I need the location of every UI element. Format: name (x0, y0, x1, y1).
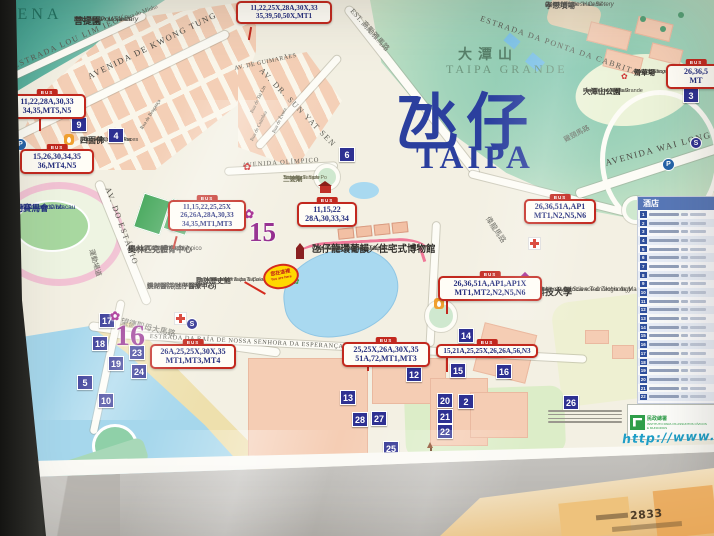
legend-row-name-cn (649, 274, 679, 277)
bus-tag: BUS (686, 59, 707, 66)
legend-row-number: 1 (640, 211, 647, 218)
bus-stop-stem (39, 118, 41, 131)
bus-stop-routes: BUS 26,36,51A,AP1MT1,N2,N5,N6 (524, 199, 596, 224)
legend-row-name-en (690, 222, 706, 225)
legend-row: 9 (638, 280, 714, 289)
legend-row-number: 8 (640, 272, 647, 279)
legend-row-name-en (690, 265, 706, 268)
bus-tag: BUS (183, 339, 204, 346)
bus-stop-routes: 11,22,25X,28A,30X,3335,39,50,50X,MT1 (236, 1, 332, 24)
legend-row-name-en (690, 387, 706, 390)
iacm-name-chinese: 民政總署 (647, 415, 707, 422)
bus-tag: BUS (197, 195, 218, 202)
attraction-marker-16: ✿ 16 (110, 310, 120, 322)
legend-row-stars (681, 230, 688, 233)
legend-row-name-cn (649, 291, 679, 294)
map-marker-22: 22 (437, 424, 453, 439)
legend-row-number: 10 (640, 289, 647, 296)
legend-row-stars (681, 334, 688, 337)
map-marker-21: 21 (437, 409, 453, 424)
legend-row-stars (681, 256, 688, 259)
legend-row: 22 (638, 392, 714, 401)
map-marker-12: 12 (406, 367, 422, 382)
legend-row-name-en (690, 291, 706, 294)
map-marker-18: 18 (92, 336, 108, 351)
legend-row-stars (681, 248, 688, 251)
legend-row-stars (681, 291, 688, 294)
legend-row: 10 (638, 288, 714, 297)
legend-row: 13 (638, 314, 714, 323)
legend-row-number: 18 (640, 359, 647, 366)
legend-row-name-cn (649, 248, 679, 251)
legend-row-stars (681, 239, 688, 242)
legend-row-name-cn (649, 387, 679, 390)
legend-header: 酒店 (638, 197, 714, 210)
legend-row-number: 14 (640, 324, 647, 331)
legend-row-name-cn (649, 334, 679, 337)
legend-row-name-cn (649, 317, 679, 320)
map-marker-4: 4 (108, 128, 124, 143)
legend-row-name-cn (649, 222, 679, 225)
currency-exchange-icon: S (690, 137, 702, 149)
legend-row-name-cn (649, 343, 679, 346)
hospital-cross-icon (174, 312, 187, 325)
building-block (612, 345, 634, 359)
hotel-legend-table: 酒店 1 2 3 4 (637, 196, 714, 404)
photo-of-map-sign: 氹仔 TAIPA 大潭山 TAIPA GRANDE UENA ESTRADA L… (0, 0, 714, 536)
legend-row-stars (681, 213, 688, 216)
building-block (470, 392, 528, 438)
bus-tag: BUS (477, 339, 498, 346)
bus-tag: BUS (37, 89, 58, 96)
region-label-chinese: 大潭山 (458, 44, 518, 64)
bus-tag: BUS (317, 197, 338, 204)
tree-dot (678, 12, 684, 18)
map-marker-19: 19 (108, 356, 124, 371)
legend-row-name-cn (649, 378, 679, 381)
legend-row-stars (681, 265, 688, 268)
building-block (248, 358, 368, 460)
small-pond (349, 182, 379, 199)
legend-row: 16 (638, 340, 714, 349)
iacm-logo-icon (630, 415, 645, 430)
legend-row-number: 19 (640, 367, 647, 374)
parking-icon: P (662, 158, 675, 171)
bus-stop-routes: BUS 26,36,5MT (666, 64, 714, 89)
legend-row: 6 (638, 253, 714, 262)
legend-row-name-cn (649, 256, 679, 259)
legend-row-stars (681, 317, 688, 320)
legend-row-stars (681, 361, 688, 364)
legend-row-number: 16 (640, 341, 647, 348)
map-marker-27: 27 (371, 411, 387, 426)
legend-row-stars (681, 274, 688, 277)
region-label-english: TAIPA GRANDE (446, 62, 568, 77)
legend-row: 17 (638, 349, 714, 358)
legend-row-number: 6 (640, 255, 647, 262)
legend-row-number: 11 (640, 298, 647, 305)
currency-exchange-icon: S (186, 318, 198, 330)
legend-row-name-en (690, 239, 706, 242)
legend-row: 8 (638, 271, 714, 280)
bus-stop-routes: BUS 26A,25,25X,30X,35MT1,MT3,MT4 (150, 344, 236, 369)
legend-row-name-en (690, 361, 706, 364)
bus-stop-routes: BUS 15,21A,25,25X,26,26A,56,N3 (436, 344, 538, 358)
legend-row-stars (681, 343, 688, 346)
bus-stop-routes: BUS 25,25X,26A,30X,3551A,72,MT1,MT3 (342, 342, 430, 367)
flower-icon: ✿ (243, 163, 251, 173)
bus-stop-routes: BUS 15,26,30,34,3536,MT4,N5 (20, 149, 94, 174)
legend-row-name-en (690, 282, 706, 285)
legend-row-name-en (690, 343, 706, 346)
bus-stop-routes: BUS 26,36,51A,AP1,AP1XMT1,MT2,N2,N5,N6 (438, 276, 542, 301)
legend-row-name-cn (649, 300, 679, 303)
temple-icon (320, 186, 331, 193)
legend-row-number: 20 (640, 376, 647, 383)
legend-row-name-en (690, 378, 706, 381)
legend-row-number: 13 (640, 315, 647, 322)
road-label-wai-long-cn: 偉龍馬路 (483, 214, 509, 245)
legend-row: 4 (638, 236, 714, 245)
legend-row-name-en (690, 308, 706, 311)
legend-row-name-en (690, 248, 706, 251)
legend-row: 5 (638, 245, 714, 254)
map-marker-9: 9 (71, 117, 87, 132)
legend-row-name-en (690, 395, 706, 398)
legend-row-stars (681, 395, 688, 398)
legend-row-name-cn (649, 282, 679, 285)
map-marker-20: 20 (437, 393, 453, 408)
legend-row-name-cn (649, 308, 679, 311)
legend-row-name-cn (649, 230, 679, 233)
map-marker-14: 14 (458, 328, 474, 343)
legend-row: 2 (638, 219, 714, 228)
legend-row-name-en (690, 317, 706, 320)
legend-row-number: 9 (640, 281, 647, 288)
map-marker-6: 6 (339, 147, 355, 162)
bus-tag: BUS (376, 337, 397, 344)
map-marker-3: 3 (683, 88, 699, 103)
bus-tag: BUS (480, 271, 501, 278)
legend-row-name-cn (649, 395, 679, 398)
map-marker-16: 16 (496, 364, 512, 379)
map-marker-15: 15 (450, 363, 466, 378)
map-title-english: TAIPA (416, 140, 534, 177)
legend-row: 21 (638, 384, 714, 393)
legend-row-number: 17 (640, 350, 647, 357)
legend-row: 14 (638, 323, 714, 332)
legend-row-name-en (690, 369, 706, 372)
legend-row: 11 (638, 297, 714, 306)
legend-row-name-cn (649, 369, 679, 372)
taipa-house (373, 223, 390, 236)
bus-tag: BUS (550, 194, 571, 201)
legend-row-number: 7 (640, 263, 647, 270)
map-marker-10: 10 (98, 393, 114, 408)
map-marker-13: 13 (340, 390, 356, 405)
legend-row: 7 (638, 262, 714, 271)
bus-tag: BUS (47, 144, 68, 151)
legend-row-stars (681, 282, 688, 285)
legend-row-name-cn (649, 361, 679, 364)
legend-row-number: 3 (640, 228, 647, 235)
hospital-cross-icon (528, 237, 541, 250)
bus-stop-routes: BUS 11,22,28A,30,3334,35,MT5,N5 (8, 94, 86, 119)
legend-row: 3 (638, 227, 714, 236)
legend-row-stars (681, 326, 688, 329)
flower-icon: ✿ (621, 73, 628, 81)
legend-row-stars (681, 300, 688, 303)
legend-row-name-en (690, 274, 706, 277)
taipa-house (391, 221, 408, 234)
legend-row-name-en (690, 334, 706, 337)
legend-row-number: 21 (640, 385, 647, 392)
legend-row-name-en (690, 256, 706, 259)
legend-row: 18 (638, 358, 714, 367)
legend-row-stars (681, 378, 688, 381)
legend-row-name-en (690, 213, 706, 216)
taipa-map-poster: 氹仔 TAIPA 大潭山 TAIPA GRANDE UENA ESTRADA L… (0, 0, 714, 490)
legend-row-name-cn (649, 239, 679, 242)
map-marker-2: 2 (458, 394, 474, 409)
legend-row-number: 2 (640, 220, 647, 227)
legend-row-stars (681, 222, 688, 225)
legend-row-stars (681, 369, 688, 372)
legend-row-name-cn (649, 352, 679, 355)
fine-print (548, 410, 622, 425)
legend-row-number: 15 (640, 333, 647, 340)
legend-row-number: 22 (640, 394, 647, 401)
map-marker-24: 24 (131, 364, 147, 379)
legend-row-stars (681, 352, 688, 355)
tree-dot (640, 16, 646, 22)
legend-row-number: 12 (640, 307, 647, 314)
legend-row: 19 (638, 366, 714, 375)
map-marker-26: 26 (563, 395, 579, 410)
legend-row-name-en (690, 300, 706, 303)
legend-row-name-en (690, 352, 706, 355)
legend-row-stars (681, 308, 688, 311)
bus-stop-routes: BUS 11,15,2228A,30,33,34 (297, 202, 357, 227)
tree-icon (427, 442, 434, 451)
legend-row-name-cn (649, 265, 679, 268)
map-marker-5: 5 (77, 375, 93, 390)
legend-row: 12 (638, 306, 714, 315)
legend-row-number: 4 (640, 237, 647, 244)
bus-stop-routes: BUS 11,15,22,25,25X26,26A,28A,30,3334,35… (168, 200, 246, 231)
legend-row-name-cn (649, 213, 679, 216)
legend-row-number: 5 (640, 246, 647, 253)
legend-row-stars (681, 387, 688, 390)
map-marker-28: 28 (352, 412, 368, 427)
legend-row: 1 (638, 210, 714, 219)
legend-row: 15 (638, 332, 714, 341)
tree-dot (660, 26, 666, 32)
legend-row-name-en (690, 326, 706, 329)
church-icon (296, 248, 304, 259)
taipa-house (355, 225, 372, 238)
legend-row: 20 (638, 375, 714, 384)
legend-row-name-cn (649, 326, 679, 329)
bus-stop-stem (446, 357, 448, 372)
legend-row-name-en (690, 230, 706, 233)
taipa-house (337, 227, 354, 240)
building-block (585, 330, 609, 344)
